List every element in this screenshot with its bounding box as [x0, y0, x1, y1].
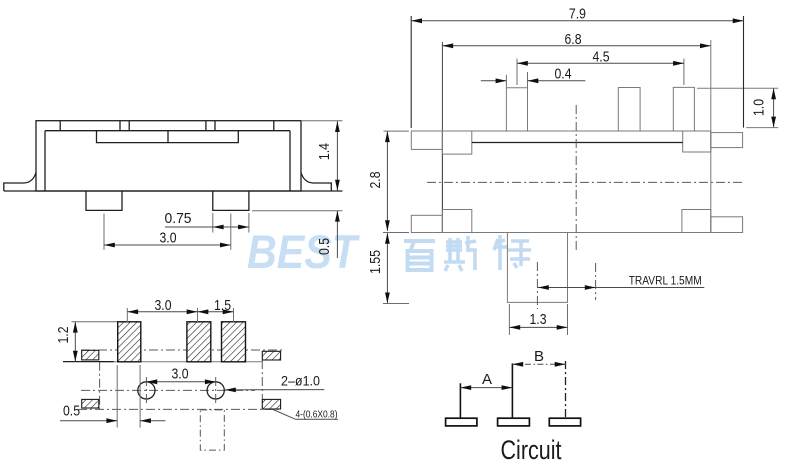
- svg-text:B: B: [534, 348, 544, 365]
- svg-text:6.8: 6.8: [565, 31, 582, 48]
- svg-text:1.55: 1.55: [367, 250, 384, 274]
- svg-text:4.5: 4.5: [593, 49, 610, 66]
- svg-text:0.5: 0.5: [63, 402, 80, 419]
- svg-text:0.5: 0.5: [316, 238, 333, 255]
- svg-text:Circuit: Circuit: [501, 435, 562, 465]
- svg-text:0.4: 0.4: [555, 66, 572, 83]
- svg-text:7.9: 7.9: [569, 5, 586, 22]
- svg-text:1.2: 1.2: [55, 327, 72, 344]
- svg-text:TRAVRL 1.5MM: TRAVRL 1.5MM: [629, 274, 702, 288]
- svg-text:3.0: 3.0: [172, 366, 189, 383]
- svg-text:1.5: 1.5: [214, 297, 231, 314]
- svg-text:BEST: BEST: [247, 225, 361, 278]
- svg-text:A: A: [482, 371, 492, 388]
- svg-text:3.0: 3.0: [155, 297, 172, 314]
- svg-text:1.4: 1.4: [316, 143, 333, 160]
- svg-text:3.0: 3.0: [160, 230, 177, 247]
- svg-text:2.8: 2.8: [367, 172, 384, 189]
- svg-text:1.0: 1.0: [751, 99, 768, 116]
- svg-text:2–ø1.0: 2–ø1.0: [281, 373, 320, 389]
- svg-text:4-(0.6X0.8): 4-(0.6X0.8): [296, 409, 338, 420]
- svg-text:0.75: 0.75: [165, 210, 192, 227]
- svg-text:1.3: 1.3: [530, 311, 547, 328]
